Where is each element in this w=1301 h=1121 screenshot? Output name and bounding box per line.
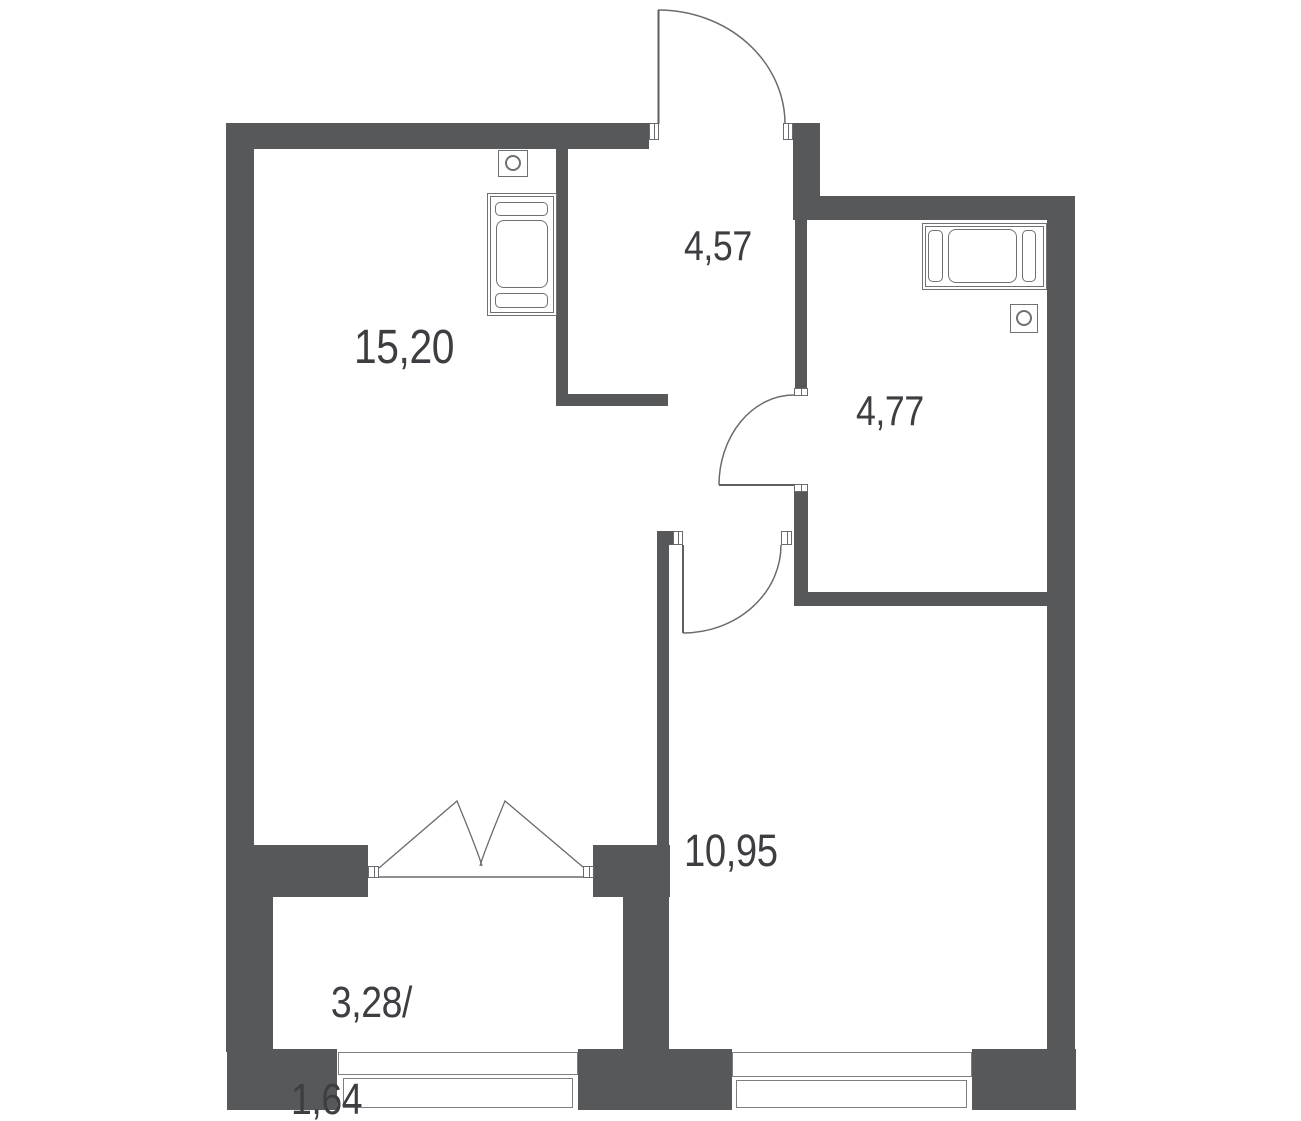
balcony-door-frame-left [368, 866, 379, 878]
bathroom-top-wall [793, 196, 1075, 220]
balcony-area-total: 3,28/ [331, 978, 412, 1027]
balcony-area-reduced: 1,64 [291, 1078, 412, 1121]
right-wall [1047, 196, 1075, 1049]
balcony-right-wall [623, 897, 658, 1050]
left-wall [226, 123, 254, 846]
bedroom-area-label: 10,95 [684, 828, 778, 873]
bedroom-window-inner [736, 1080, 967, 1108]
balcony-casement-left [379, 801, 482, 868]
sink-basin-circle [505, 155, 521, 171]
bottom-middle-wall-block [578, 1049, 732, 1110]
bathtub-left-pad [928, 230, 943, 282]
bottom-right-corner-block [972, 1049, 1076, 1110]
bathtub-right-pad [1022, 230, 1036, 282]
entrance-door-frame-left [649, 123, 659, 140]
washing-machine-drum-circle [1016, 310, 1032, 326]
bedroom-door-arc [683, 545, 781, 633]
bedroom-window-outer [732, 1052, 972, 1077]
hall-partition-wall-horizontal [556, 394, 668, 406]
living-bottom-wall-left [253, 845, 368, 897]
hallway-area-label: 4,57 [684, 225, 752, 267]
balcony-door-frame-right [583, 866, 594, 878]
balcony-area-label: 3,28/ 1,64 [291, 937, 412, 1121]
bathroom-door-arc [719, 395, 794, 485]
hall-partition-wall-vertical [556, 149, 568, 406]
bedroom-door-frame-left [673, 531, 683, 545]
bathroom-left-wall-lower [794, 491, 808, 606]
floor-plan: 15,20 4,57 4,77 10,95 3,28/ 1,64 [0, 0, 1301, 1121]
living-room-area-label: 15,20 [354, 324, 454, 372]
bed-footboard [495, 293, 548, 308]
entrance-door-frame-right [783, 123, 793, 140]
living-bedroom-wall [657, 531, 669, 1050]
balcony-casement-right [480, 801, 583, 867]
bathroom-door-frame-top [794, 388, 808, 396]
bed-mattress [496, 220, 548, 288]
bedroom-door-frame-right [781, 531, 792, 545]
bathroom-area-label: 4,77 [856, 390, 924, 432]
entrance-door-arc [658, 10, 785, 124]
bathroom-left-wall-upper [795, 220, 807, 389]
top-wall [226, 123, 649, 149]
bathroom-door-frame-bottom [794, 484, 808, 492]
bathroom-bottom-wall [794, 592, 1047, 606]
bathtub-basin [948, 229, 1017, 283]
bedroom-top-wall-stub [657, 531, 673, 545]
bed-headboard [495, 202, 548, 216]
